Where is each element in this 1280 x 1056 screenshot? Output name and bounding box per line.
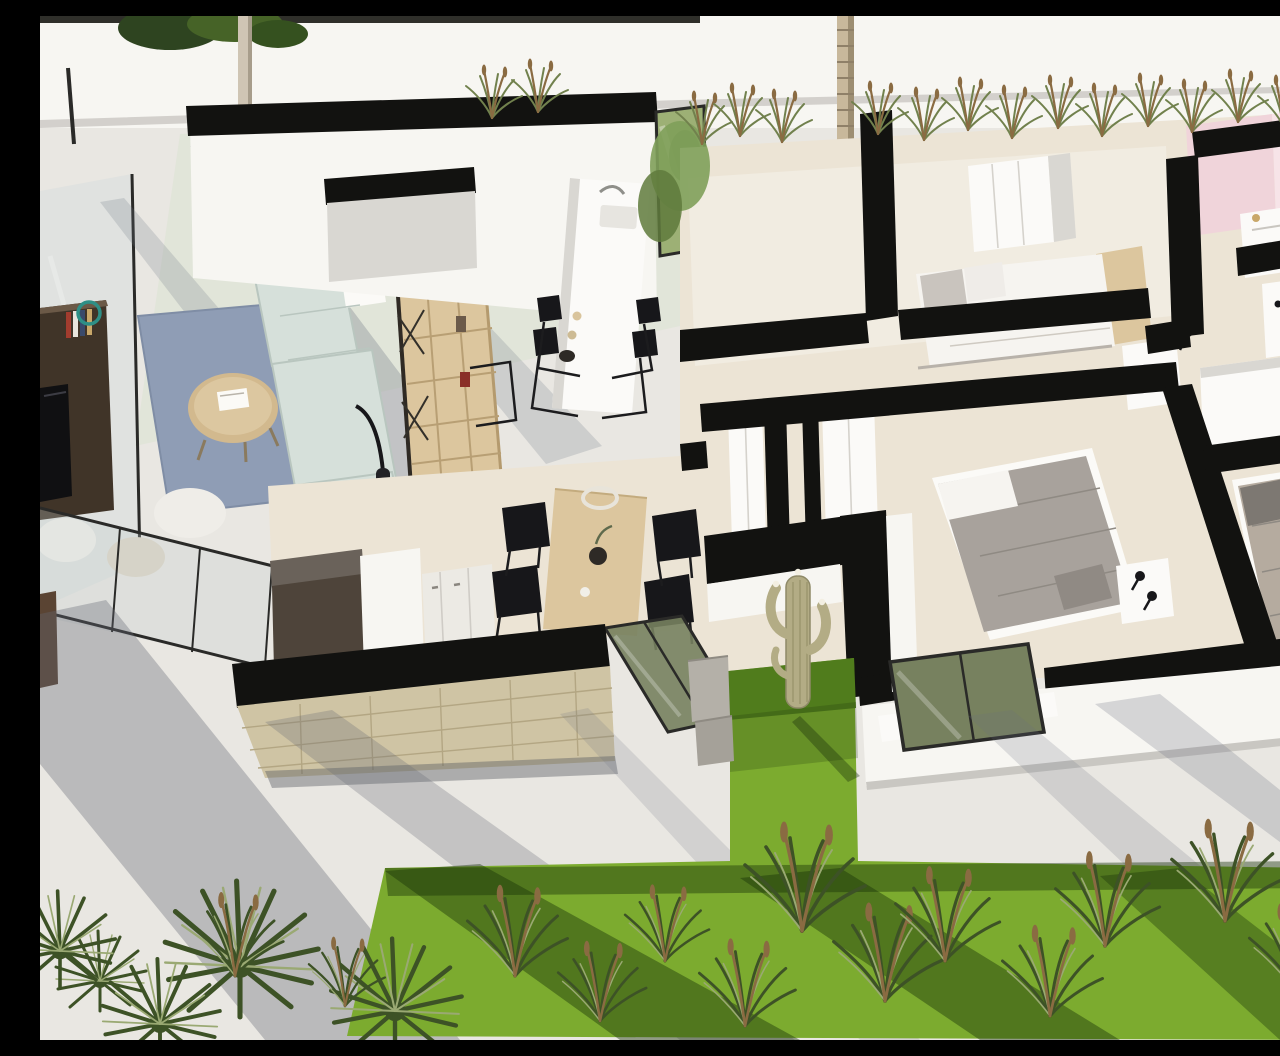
island-bowl [559,350,575,362]
floor-plan-render: Aerial 3D cutaway render of a modern sin… [40,16,1280,1040]
pillow [964,262,1006,302]
island-cup [573,312,582,321]
render-scene [40,16,1280,1040]
table-vase [589,547,607,565]
media-sideboard [40,300,114,520]
dining-table [543,488,647,636]
gold-accent [1252,214,1260,222]
low-wall-face [327,191,477,282]
tv-screen [40,384,72,502]
wardrobe [968,153,1076,252]
nightstand [1116,558,1174,624]
